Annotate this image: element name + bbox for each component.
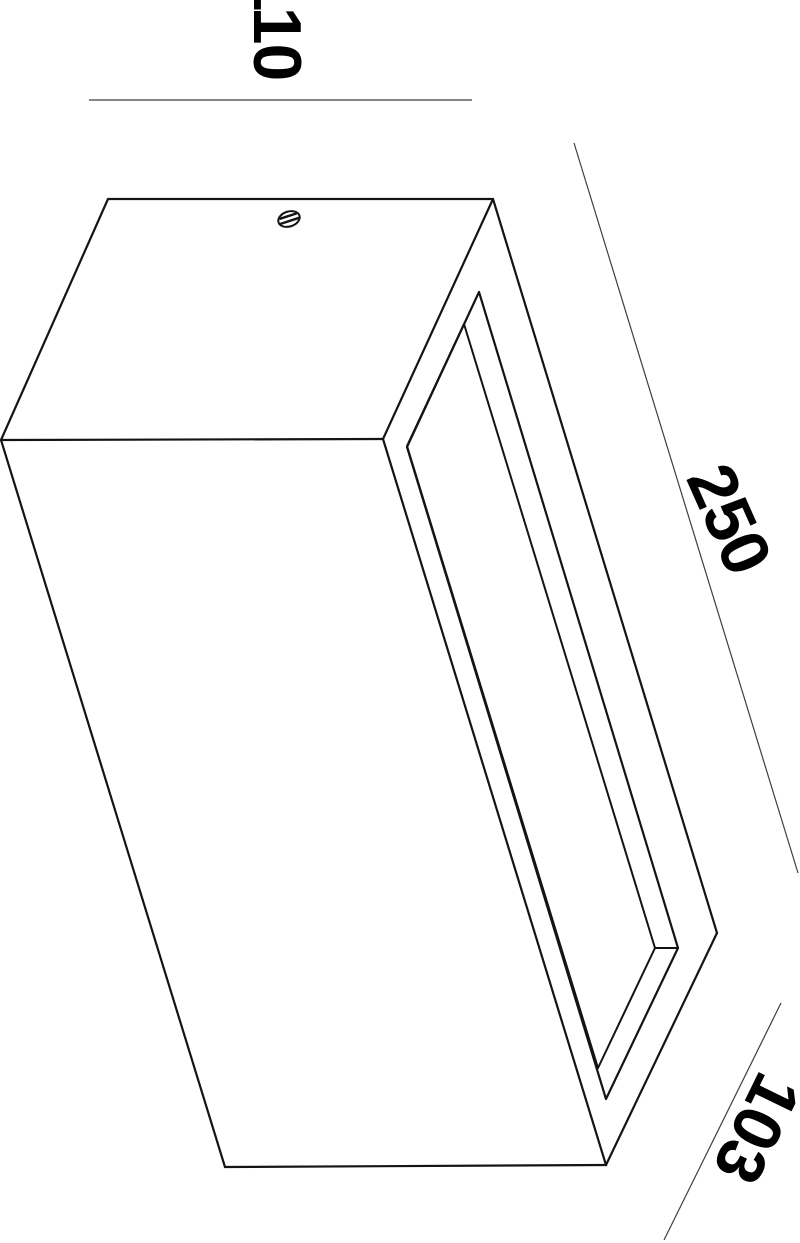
box-front-vertical-edge (383, 439, 606, 1165)
box-bottom-right-edge (606, 933, 717, 1165)
dimension-label-depth: 103 (699, 1062, 800, 1195)
box-left-vertical-edge (1, 440, 225, 1167)
opening-inner-frame (407, 324, 655, 1068)
dimensional-drawing-svg: 110 250 103 (0, 0, 800, 1243)
box-right-vertical-edge (493, 199, 717, 933)
box-top-face (1, 199, 493, 440)
recessed-opening (407, 292, 678, 1099)
box-wireframe (1, 199, 717, 1167)
opening-outer-frame (407, 292, 678, 1099)
dimension-label-width: 110 (239, 0, 315, 80)
screw-head-icon (276, 208, 302, 229)
technical-drawing-canvas: 110 250 103 (0, 0, 800, 1243)
dimension-labels: 110 250 103 (239, 0, 800, 1194)
dimension-label-length: 250 (672, 453, 786, 585)
box-bottom-front-edge (225, 1165, 606, 1167)
